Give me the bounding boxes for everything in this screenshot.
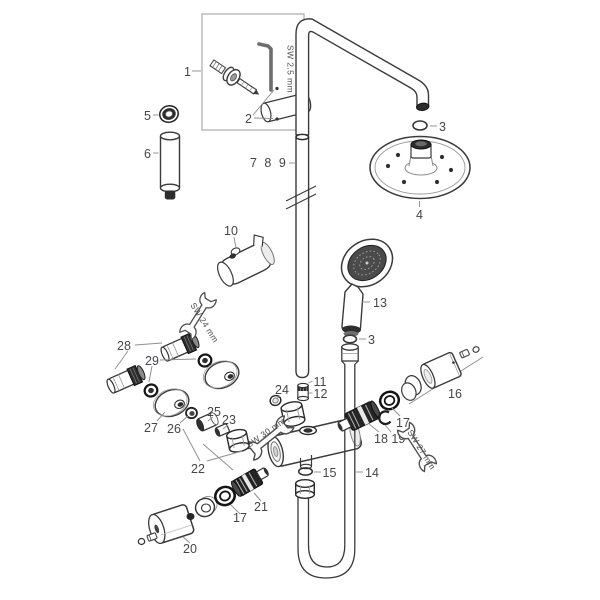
label-part-3-arm: 3 [439,120,446,134]
label-part-1: 1 [184,65,191,79]
label-part-26: 26 [167,422,181,436]
label-part-29: 29 [145,354,159,368]
oring-hose [344,335,357,343]
stay-screw-top [275,87,278,90]
diagram-canvas: SW 2.5 mm 1 2 3 4 5 [0,0,600,600]
label-part-4: 4 [416,208,423,222]
label-part-13: 13 [373,296,387,310]
exploded-diagram-svg: SW 2.5 mm 1 2 3 4 5 [0,0,600,600]
label-part-2: 2 [245,112,252,126]
riser-pipe-top-rim [296,134,309,139]
label-part-14: 14 [365,466,379,480]
hose-nut [296,480,315,499]
extension-tube-6 [161,132,180,199]
label-part-23: 23 [222,413,236,427]
label-part-22: 22 [191,462,205,476]
label-part-25: 25 [207,405,221,419]
fitting-11-12 [298,383,308,400]
leader-line [254,118,273,119]
label-part-10: 10 [224,224,238,238]
allen-key-size-label: SW 2.5 mm [286,45,296,93]
label-part-21: 21 [254,500,268,514]
label-parts-789: 7 8 9 [250,156,288,170]
label-part-12: 12 [314,387,328,401]
label-part-24: 24 [275,383,289,397]
label-part-15: 15 [323,466,337,480]
hose-connector [342,344,358,365]
riser-pipe [296,137,309,378]
label-part-6: 6 [144,147,151,161]
stay-screw-bottom [275,117,278,120]
label-part-3-hose: 3 [368,333,375,347]
label-part-17-right: 17 [396,416,410,430]
label-part-28: 28 [117,339,131,353]
label-part-16: 16 [448,387,462,401]
hex-nut-22 [226,428,250,454]
label-part-5: 5 [144,109,151,123]
overhead-shower [370,137,470,199]
label-part-17-left: 17 [233,511,247,525]
label-part-20: 20 [183,542,197,556]
label-part-27: 27 [144,421,158,435]
